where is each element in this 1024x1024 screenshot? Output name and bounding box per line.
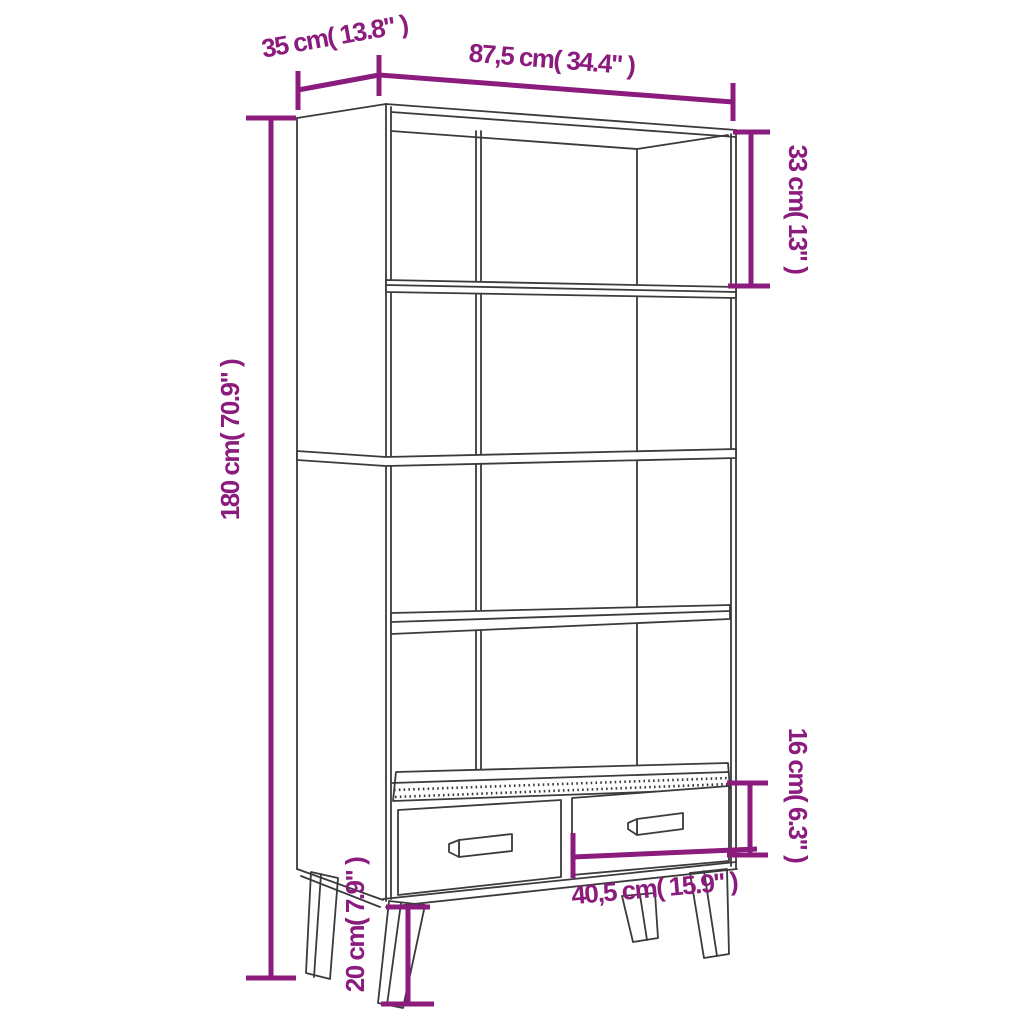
front-left-leg [378,901,425,1008]
dimension-width: 87,5 cm( 34.4" ) [379,38,733,121]
dimension-diagram-svg: 35 cm( 13.8" ) 87,5 cm( 34.4" ) 33 cm( 1… [0,0,1024,1024]
left-drawer [398,800,561,895]
top-panel-underside-edge [391,112,736,137]
mid-joint-band [297,449,736,466]
lower-shelf [391,605,730,634]
dimension-depth: 35 cm( 13.8" ) [259,8,410,110]
dimension-total-height: 180 cm( 70.9" ) [215,118,296,978]
dimension-diagram: 35 cm( 13.8" ) 87,5 cm( 34.4" ) 33 cm( 1… [0,0,1024,1024]
top-panel-front-edge [386,104,736,130]
dimension-top-shelf-height: 33 cm( 13" ) [728,132,813,286]
total-height-label: 180 cm( 70.9" ) [215,359,245,520]
dimension-drawer-height: 16 cm( 6.3" ) [727,728,813,863]
upper-shelf [386,280,736,298]
top-shelf-height-label: 33 cm( 13" ) [783,145,813,275]
depth-dimension-label: 35 cm( 13.8" ) [259,8,410,63]
right-drawer [572,786,729,875]
width-dimension-label: 87,5 cm( 34.4" ) [468,38,637,81]
drawer-height-label: 16 cm( 6.3" ) [783,728,813,863]
leg-height-label: 20 cm( 7.9" ) [340,857,370,992]
side-panel-top-edge [297,104,386,118]
